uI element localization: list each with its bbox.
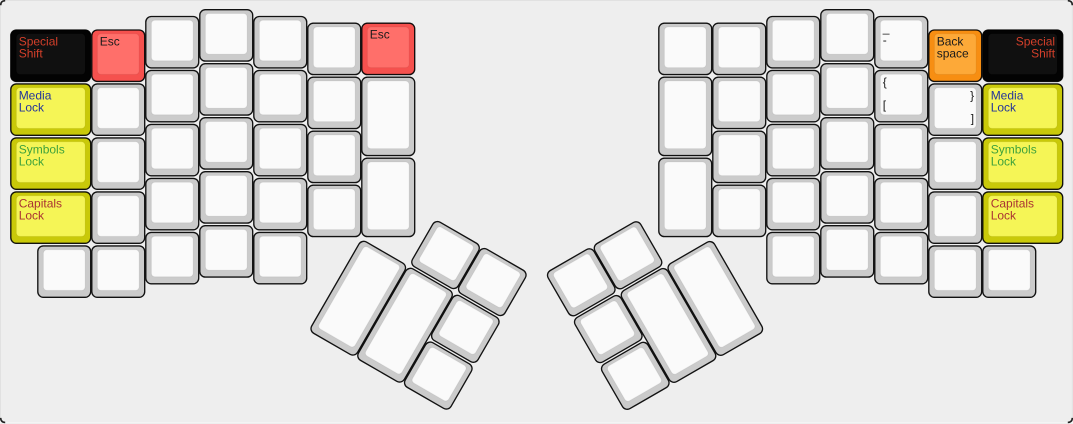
svg-text:space: space — [937, 47, 969, 61]
svg-text:Lock: Lock — [991, 100, 1017, 114]
svg-text:Lock: Lock — [19, 154, 45, 168]
svg-text:]: ] — [971, 111, 974, 125]
svg-text:Lock: Lock — [19, 100, 45, 114]
svg-text:Shift: Shift — [19, 47, 44, 61]
svg-text:-: - — [883, 33, 887, 47]
svg-text:}: } — [970, 88, 974, 102]
svg-text:{: { — [883, 75, 887, 89]
svg-text:Esc: Esc — [100, 35, 120, 49]
svg-text:Lock: Lock — [991, 208, 1017, 222]
svg-text:Esc: Esc — [370, 28, 390, 42]
svg-text:Shift: Shift — [1031, 47, 1056, 61]
svg-text:Lock: Lock — [991, 154, 1017, 168]
svg-text:Lock: Lock — [19, 208, 45, 222]
